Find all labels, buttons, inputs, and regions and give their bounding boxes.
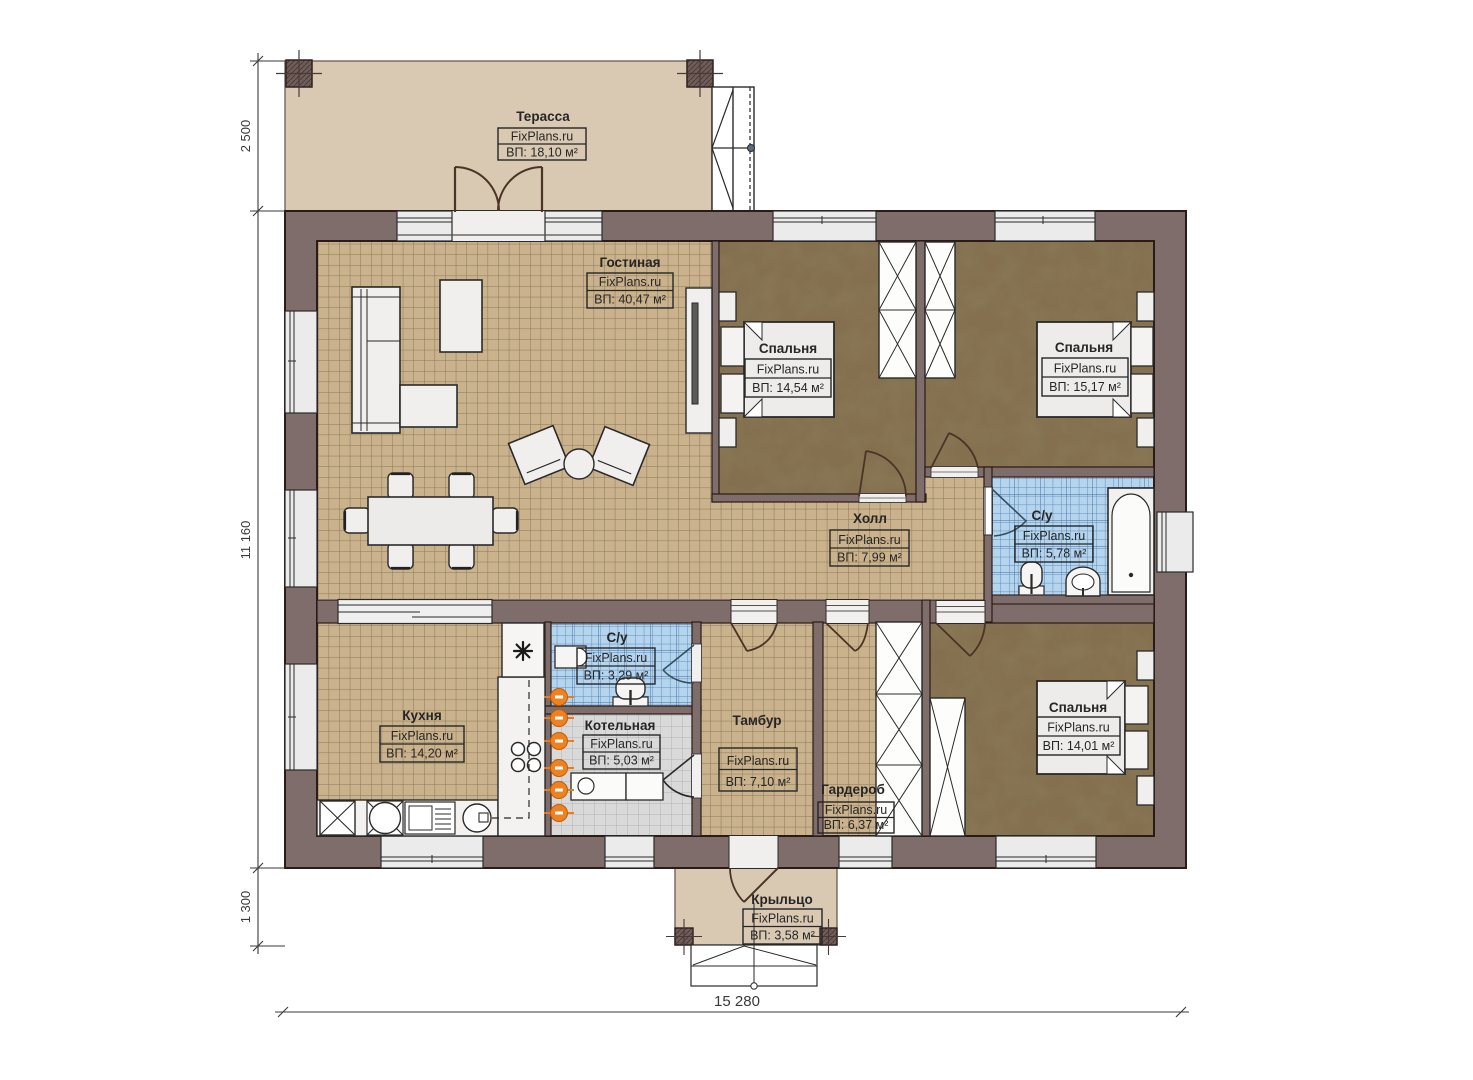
- svg-text:FixPlans.ru: FixPlans.ru: [727, 754, 790, 768]
- svg-text:ВП: 3,29 м²: ВП: 3,29 м²: [584, 669, 649, 683]
- svg-text:ВП: 6,37 м²: ВП: 6,37 м²: [824, 818, 889, 832]
- svg-text:FixPlans.ru: FixPlans.ru: [599, 275, 662, 289]
- svg-text:Тамбур: Тамбур: [733, 713, 782, 728]
- svg-text:11 160: 11 160: [238, 521, 253, 560]
- svg-text:2 500: 2 500: [238, 120, 253, 153]
- svg-text:15 280: 15 280: [714, 993, 760, 1010]
- svg-text:ВП: 14,20 м²: ВП: 14,20 м²: [386, 747, 458, 761]
- svg-text:ВП: 5,03 м²: ВП: 5,03 м²: [589, 754, 654, 768]
- svg-text:FixPlans.ru: FixPlans.ru: [1054, 362, 1117, 376]
- svg-text:Котельная: Котельная: [585, 718, 656, 733]
- svg-text:С/у: С/у: [1031, 508, 1053, 523]
- svg-text:FixPlans.ru: FixPlans.ru: [838, 533, 901, 547]
- svg-text:Спальня: Спальня: [759, 341, 817, 356]
- svg-text:ВП: 14,54 м²: ВП: 14,54 м²: [752, 381, 824, 395]
- svg-text:FixPlans.ru: FixPlans.ru: [751, 912, 814, 926]
- svg-text:ВП: 3,58 м²: ВП: 3,58 м²: [750, 929, 815, 943]
- svg-text:FixPlans.ru: FixPlans.ru: [757, 363, 820, 377]
- svg-text:FixPlans.ru: FixPlans.ru: [825, 803, 888, 817]
- svg-text:1 300: 1 300: [238, 891, 253, 924]
- svg-text:ВП: 15,17 м²: ВП: 15,17 м²: [1049, 380, 1121, 394]
- svg-text:С/у: С/у: [606, 630, 628, 645]
- svg-text:Терасса: Терасса: [516, 109, 570, 124]
- svg-text:ВП: 7,99 м²: ВП: 7,99 м²: [837, 551, 902, 565]
- svg-text:FixPlans.ru: FixPlans.ru: [511, 130, 574, 144]
- svg-text:ВП: 5,78 м²: ВП: 5,78 м²: [1022, 547, 1087, 561]
- svg-text:FixPlans.ru: FixPlans.ru: [585, 651, 648, 665]
- svg-text:Крыльцо: Крыльцо: [751, 892, 812, 907]
- svg-text:Холл: Холл: [853, 511, 887, 526]
- svg-text:FixPlans.ru: FixPlans.ru: [1023, 529, 1086, 543]
- svg-text:Спальня: Спальня: [1049, 700, 1107, 715]
- svg-text:ВП: 14,01 м²: ВП: 14,01 м²: [1043, 739, 1115, 753]
- svg-text:ВП: 40,47 м²: ВП: 40,47 м²: [594, 293, 666, 307]
- svg-text:FixPlans.ru: FixPlans.ru: [590, 737, 653, 751]
- svg-text:ВП: 18,10 м²: ВП: 18,10 м²: [506, 146, 578, 160]
- svg-text:Гостиная: Гостиная: [599, 255, 660, 270]
- svg-text:FixPlans.ru: FixPlans.ru: [391, 729, 454, 743]
- svg-text:ВП: 7,10 м²: ВП: 7,10 м²: [726, 775, 791, 789]
- svg-text:Кухня: Кухня: [402, 708, 441, 723]
- svg-text:Спальня: Спальня: [1055, 340, 1113, 355]
- svg-text:Гардероб: Гардероб: [821, 782, 885, 797]
- svg-text:FixPlans.ru: FixPlans.ru: [1047, 721, 1110, 735]
